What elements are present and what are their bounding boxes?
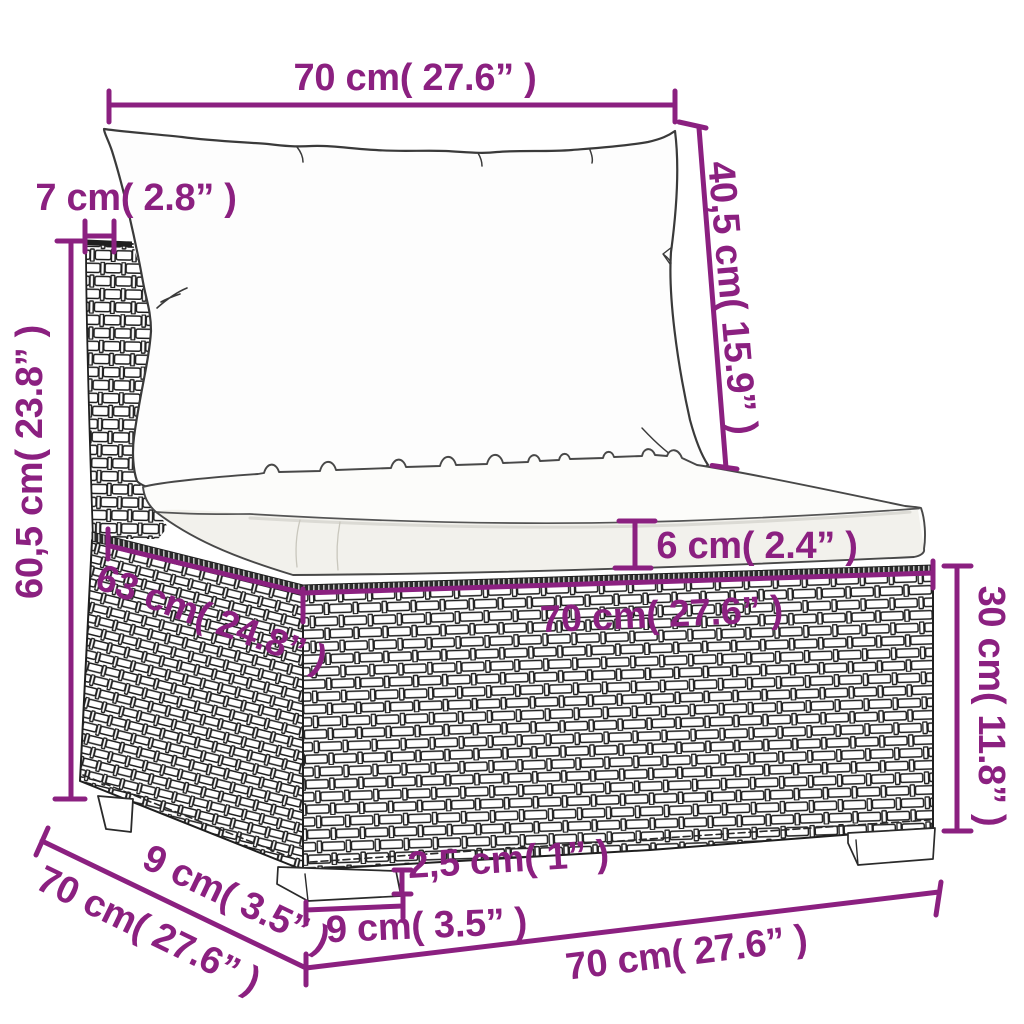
svg-text:7 cm( 2.8” ): 7 cm( 2.8” ) xyxy=(35,177,236,219)
svg-text:6 cm( 2.4” ): 6 cm( 2.4” ) xyxy=(656,525,857,567)
svg-text:70 cm( 27.6” ): 70 cm( 27.6” ) xyxy=(294,57,537,99)
svg-text:60,5 cm( 23.8” ): 60,5 cm( 23.8” ) xyxy=(9,325,51,599)
svg-text:9 cm( 3.5” ): 9 cm( 3.5” ) xyxy=(325,901,528,952)
svg-text:30 cm( 11.8” ): 30 cm( 11.8” ) xyxy=(970,586,1012,827)
